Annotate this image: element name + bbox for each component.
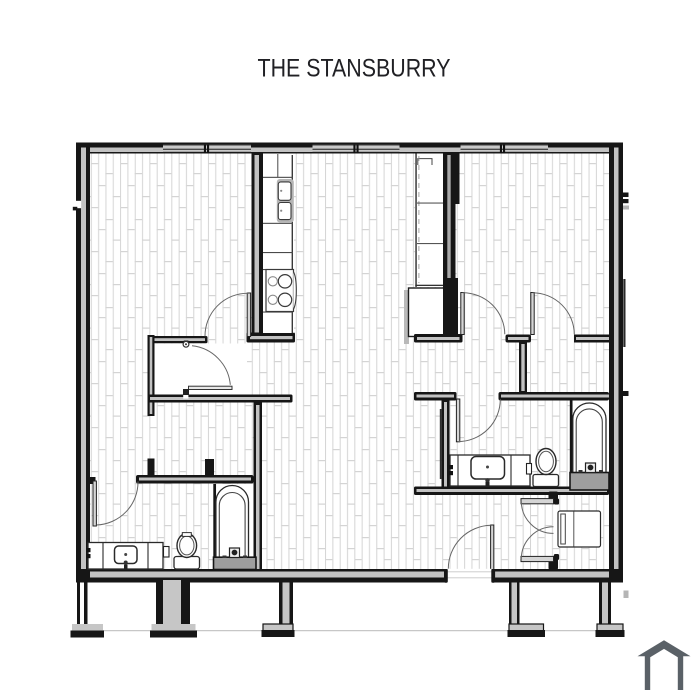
svg-text:THE STANSBURRY: THE STANSBURRY — [258, 55, 451, 83]
